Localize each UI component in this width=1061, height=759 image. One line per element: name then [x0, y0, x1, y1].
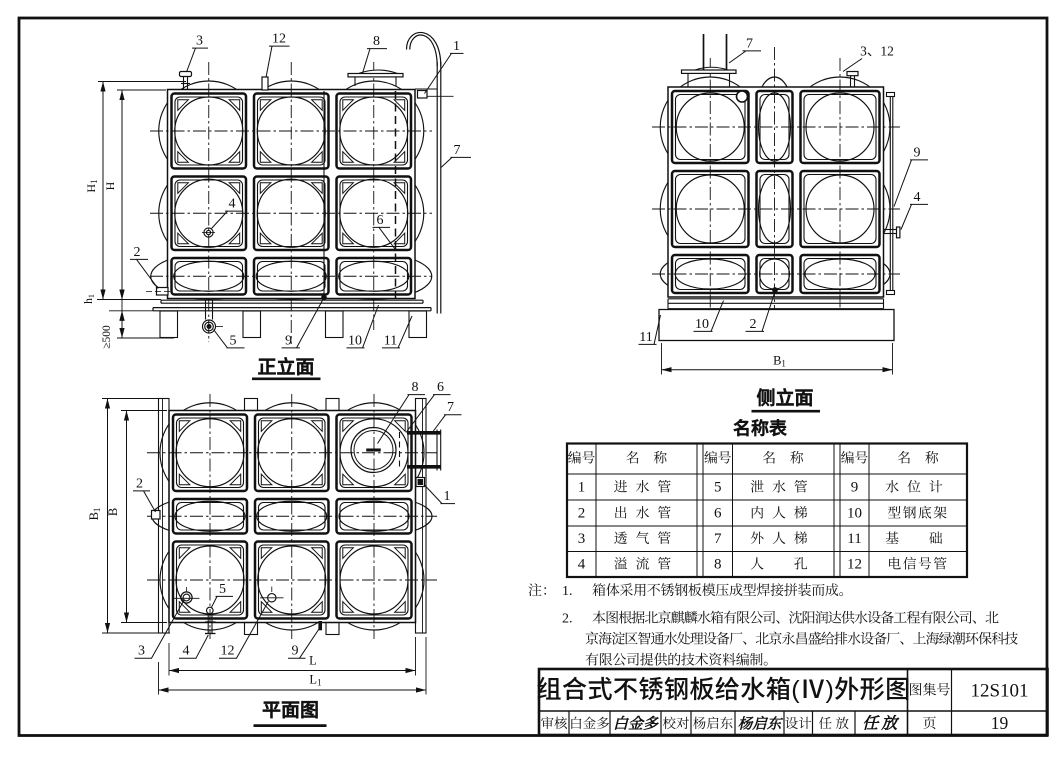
svg-text:内人梯: 内人梯 — [750, 502, 815, 522]
svg-text:2: 2 — [134, 245, 141, 260]
svg-text:基 础: 基 础 — [885, 527, 950, 547]
svg-text:2: 2 — [136, 476, 143, 491]
svg-text:8: 8 — [412, 380, 419, 395]
svg-text:3: 3 — [578, 531, 586, 547]
svg-text:B: B — [106, 508, 120, 516]
svg-text:白金多: 白金多 — [613, 713, 659, 734]
svg-text:编号: 编号 — [841, 447, 869, 467]
svg-text:11: 11 — [384, 333, 397, 348]
svg-text:编号: 编号 — [704, 447, 732, 467]
svg-text:4: 4 — [183, 644, 190, 659]
svg-text:9: 9 — [292, 644, 299, 659]
svg-text:6: 6 — [377, 213, 384, 228]
svg-text:有限公司提供的技术资料编制。: 有限公司提供的技术资料编制。 — [585, 650, 777, 670]
svg-text:5: 5 — [714, 480, 722, 496]
svg-text:19: 19 — [991, 713, 1009, 733]
svg-text:9: 9 — [851, 480, 859, 496]
svg-text:白金多: 白金多 — [569, 712, 610, 732]
svg-text:本图根据北京麒麟水箱有限公司、沈阳润达供水设备工程有限公司、: 本图根据北京麒麟水箱有限公司、沈阳润达供水设备工程有限公司、北 — [592, 608, 999, 628]
svg-text:5: 5 — [219, 582, 226, 597]
svg-text:名 称: 名 称 — [897, 447, 939, 467]
svg-text:页: 页 — [923, 713, 937, 733]
svg-text:6: 6 — [437, 380, 444, 395]
svg-text:2: 2 — [578, 506, 586, 522]
svg-text:人 孔: 人 孔 — [750, 553, 815, 573]
svg-text:4: 4 — [229, 197, 236, 212]
svg-text:3、12: 3、12 — [860, 44, 894, 59]
svg-text:≥500: ≥500 — [101, 325, 113, 349]
svg-text:组合式不锈钢板给水箱(Ⅳ)外形图: 组合式不锈钢板给水箱(Ⅳ)外形图 — [536, 670, 910, 706]
svg-text:12: 12 — [221, 644, 235, 659]
svg-text:杨启东: 杨启东 — [693, 712, 734, 732]
svg-text:箱体采用不锈钢板模压成型焊接拼装而成。: 箱体采用不锈钢板模压成型焊接拼装而成。 — [592, 580, 852, 600]
svg-text:电信号管: 电信号管 — [887, 553, 948, 573]
svg-text:杨启东: 杨启东 — [738, 713, 784, 734]
svg-text:7: 7 — [447, 400, 454, 415]
svg-text:1: 1 — [578, 480, 586, 496]
svg-text:12: 12 — [272, 32, 286, 47]
svg-text:8: 8 — [373, 34, 380, 49]
svg-text:1: 1 — [444, 489, 451, 504]
svg-text:型钢底架: 型钢底架 — [887, 502, 948, 522]
svg-text:名 称: 名 称 — [626, 447, 668, 467]
svg-text:L: L — [309, 654, 317, 668]
svg-text:12S101: 12S101 — [970, 681, 1028, 702]
svg-text:4: 4 — [914, 190, 921, 205]
svg-text:7: 7 — [746, 36, 753, 51]
svg-text:10: 10 — [847, 506, 862, 522]
svg-text:3: 3 — [196, 34, 203, 49]
svg-text:任 放: 任 放 — [819, 712, 850, 732]
svg-text:11: 11 — [639, 330, 652, 345]
svg-text:水位计: 水位计 — [885, 476, 950, 496]
svg-text:审核: 审核 — [541, 712, 569, 732]
svg-text:名称表: 名称表 — [733, 415, 788, 441]
svg-text:外人梯: 外人梯 — [750, 527, 815, 547]
svg-text:10: 10 — [695, 317, 709, 332]
svg-text:注：: 注： — [528, 580, 556, 600]
svg-text:泄水管: 泄水管 — [750, 476, 815, 496]
svg-text:图集号: 图集号 — [909, 680, 951, 700]
svg-text:编号: 编号 — [568, 447, 596, 467]
svg-text:溢流管: 溢流管 — [614, 553, 679, 573]
svg-text:9: 9 — [285, 333, 292, 348]
svg-text:3: 3 — [138, 644, 145, 659]
svg-text:11: 11 — [847, 531, 861, 547]
svg-text:进水管: 进水管 — [614, 476, 679, 496]
svg-text:侧立面: 侧立面 — [756, 384, 813, 411]
svg-text:京海淀区智通水处理设备厂、北京永昌盛给排水设备厂、上海绿潮环: 京海淀区智通水处理设备厂、北京永昌盛给排水设备厂、上海绿潮环保科技 — [585, 629, 1018, 649]
svg-text:名 称: 名 称 — [762, 447, 804, 467]
svg-text:9: 9 — [914, 145, 921, 160]
svg-text:H: H — [103, 181, 117, 190]
svg-text:任放: 任放 — [862, 711, 900, 734]
svg-text:透气管: 透气管 — [614, 527, 679, 547]
svg-text:1.: 1. — [562, 584, 573, 599]
svg-text:12: 12 — [847, 557, 862, 573]
svg-text:正立面: 正立面 — [257, 353, 314, 380]
svg-text:7: 7 — [714, 531, 722, 547]
svg-text:7: 7 — [454, 143, 461, 158]
svg-text:2: 2 — [750, 317, 757, 332]
svg-text:设计: 设计 — [785, 712, 813, 732]
svg-text:6: 6 — [714, 506, 722, 522]
svg-text:5: 5 — [230, 333, 237, 348]
svg-text:2.: 2. — [562, 612, 573, 627]
svg-text:出水管: 出水管 — [614, 502, 679, 522]
svg-text:4: 4 — [578, 557, 586, 573]
svg-text:校对: 校对 — [663, 712, 690, 732]
svg-text:8: 8 — [714, 557, 722, 573]
svg-text:平面图: 平面图 — [262, 696, 319, 723]
svg-text:1: 1 — [453, 39, 460, 54]
svg-text:10: 10 — [348, 333, 362, 348]
